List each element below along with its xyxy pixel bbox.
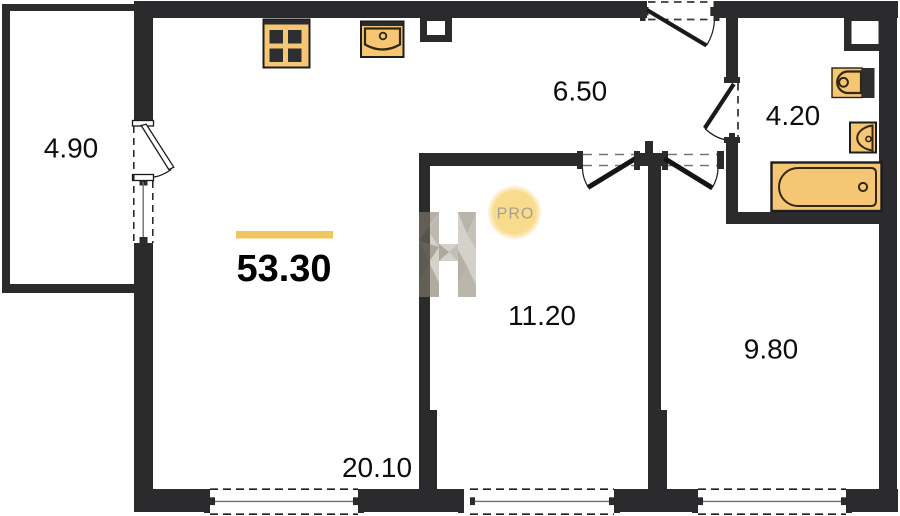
svg-text:9.80: 9.80 bbox=[744, 334, 799, 365]
svg-text:4.20: 4.20 bbox=[766, 100, 821, 131]
svg-text:4.90: 4.90 bbox=[44, 133, 99, 164]
svg-text:6.50: 6.50 bbox=[553, 76, 608, 107]
svg-text:PRO: PRO bbox=[497, 206, 535, 223]
svg-text:53.30: 53.30 bbox=[236, 248, 331, 290]
svg-text:20.10: 20.10 bbox=[342, 452, 412, 483]
svg-text:11.20: 11.20 bbox=[508, 300, 576, 331]
